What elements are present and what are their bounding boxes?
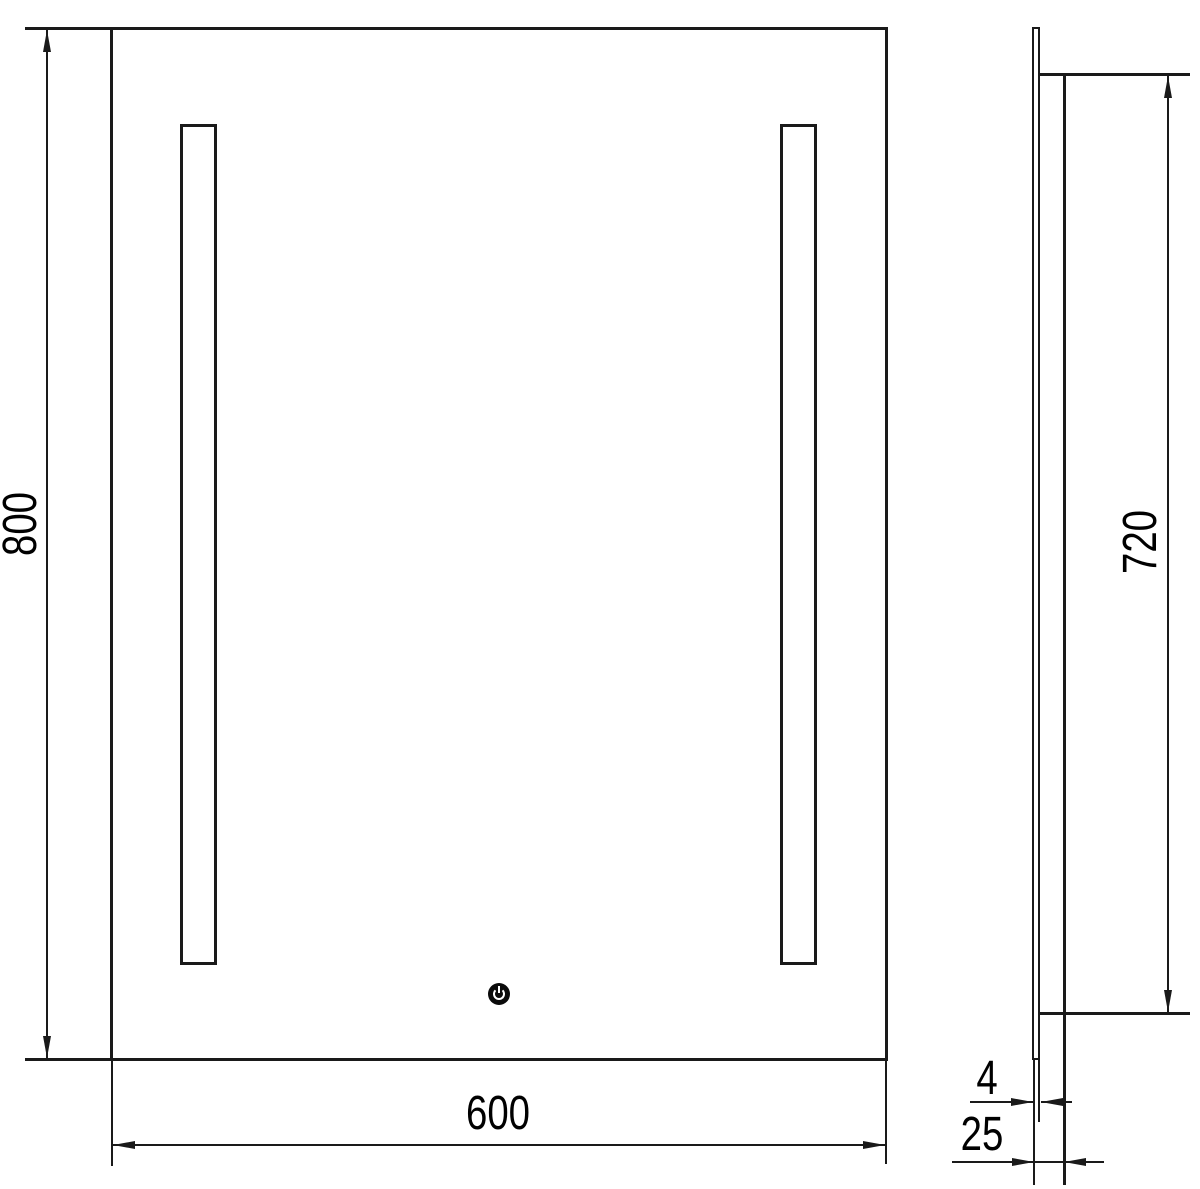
dimension-label-illuminated-height: 720: [1117, 510, 1165, 574]
dimension-line-mirror-width: [113, 1144, 885, 1146]
extension-line-bottom: [25, 1058, 111, 1061]
dimension-label-glass-thickness: 4: [976, 1055, 997, 1103]
dimension-label-mirror-height: 800: [0, 492, 45, 556]
arrowhead-left-icon: [113, 1141, 135, 1149]
power-button: [488, 983, 510, 1005]
extension-line-top: [25, 27, 111, 30]
power-icon-stem: [498, 986, 500, 993]
glass-rear-extension: [1038, 1060, 1040, 1122]
technical-drawing: 800 600 720 4: [0, 0, 1200, 1189]
arrowhead-right-icon: [1011, 1098, 1033, 1106]
arrowhead-up-icon: [43, 30, 51, 52]
arrowhead-right-icon: [863, 1141, 885, 1149]
light-strip-left: [180, 124, 217, 965]
mirror-outline: [110, 27, 888, 1061]
light-strip-right: [780, 124, 817, 965]
dimension-label-total-depth: 25: [961, 1111, 1004, 1159]
arrowhead-down-icon: [1164, 990, 1172, 1012]
glass-pane-outline: [1032, 27, 1040, 1060]
dimension-label-mirror-width: 600: [466, 1090, 530, 1138]
extension-line-left: [111, 1061, 113, 1166]
arrowhead-left-icon: [1064, 1158, 1086, 1166]
arrowhead-up-icon: [1164, 76, 1172, 98]
extension-line-right: [885, 1061, 887, 1164]
backbox-rear-edge: [1063, 73, 1066, 1185]
arrowhead-right-icon: [1012, 1158, 1034, 1166]
dimension-line-illuminated-height: [1167, 76, 1169, 1013]
arrowhead-left-icon: [1041, 1098, 1063, 1106]
arrowhead-down-icon: [43, 1036, 51, 1058]
glass-front-extension: [1033, 1060, 1035, 1185]
